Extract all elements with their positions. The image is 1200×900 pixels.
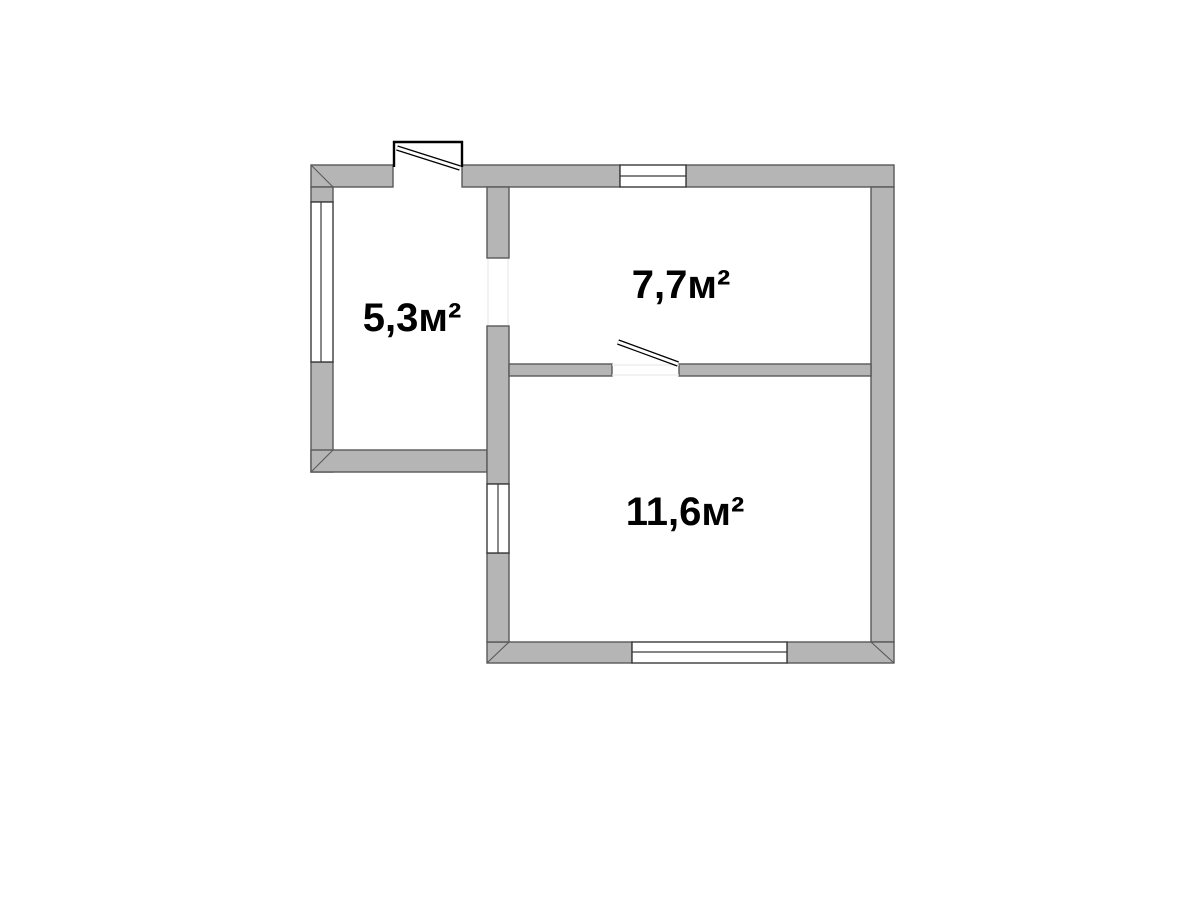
floor-plan-drawing [0, 0, 1200, 900]
wall-partition-vertical-upper [487, 187, 509, 258]
wall-top-right-segment [686, 165, 894, 187]
wall-bottom-right-segment [787, 642, 894, 663]
room-label-large: 11,6м² [626, 492, 745, 532]
wall-top-middle-segment [462, 165, 620, 187]
wall-left-upper-segment [311, 187, 333, 202]
wall-bottom-left-segment [487, 642, 632, 663]
walls [311, 165, 894, 663]
interior-door-leaf-fill [618, 342, 678, 364]
room-label-medium: 7,7м² [632, 265, 731, 305]
wall-top-left-segment [311, 165, 393, 187]
wall-partition-horizontal-right [679, 364, 871, 376]
wall-partition-horizontal-left [509, 364, 612, 376]
wall-partition-vertical-middle [487, 326, 509, 484]
windows [311, 165, 787, 663]
floor-plan-canvas: 5,3м² 7,7м² 11,6м² [0, 0, 1200, 900]
corner-miters [311, 165, 894, 663]
wall-right [871, 187, 894, 642]
room-label-small: 5,3м² [363, 298, 462, 338]
wall-small-room-bottom [311, 450, 487, 472]
window-left [311, 202, 333, 362]
wall-partition-vertical-lower [487, 553, 509, 642]
